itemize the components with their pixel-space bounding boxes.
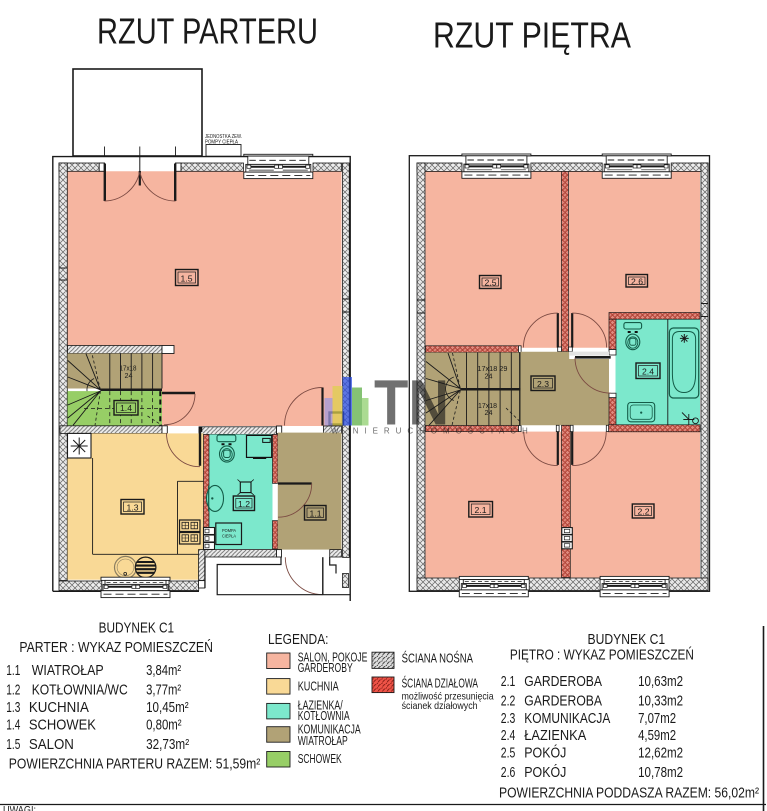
svg-text:1.1: 1.1 [310, 509, 322, 519]
svg-text:1.5: 1.5 [6, 737, 20, 753]
svg-text:3,84m²: 3,84m² [146, 663, 181, 679]
svg-text:SCHOWEK: SCHOWEK [298, 751, 342, 766]
svg-text:2.6: 2.6 [631, 276, 643, 286]
svg-text:24: 24 [485, 410, 493, 417]
svg-text:17x18 29: 17x18 29 [477, 366, 507, 373]
svg-text:GARDEROBA: GARDEROBA [524, 694, 602, 710]
svg-text:KUCHNIA: KUCHNIA [29, 700, 89, 716]
svg-text:1.4: 1.4 [6, 718, 20, 734]
svg-text:RZUT PIĘTRA: RZUT PIĘTRA [433, 15, 631, 56]
svg-text:KUCHNIA: KUCHNIA [298, 679, 339, 694]
svg-text:4,59m2: 4,59m2 [638, 728, 676, 744]
svg-text:0,80m²: 0,80m² [146, 718, 182, 734]
svg-text:2.1: 2.1 [501, 674, 516, 690]
svg-text:2.4: 2.4 [501, 728, 516, 744]
svg-text:ŚCIANA NOŚNA: ŚCIANA NOŚNA [402, 651, 474, 666]
svg-text:SCHOWEK: SCHOWEK [29, 718, 96, 734]
svg-text:1.3: 1.3 [6, 700, 20, 716]
svg-text:10,78m2: 10,78m2 [638, 765, 683, 781]
svg-text:WIATROŁAP: WIATROŁAP [298, 733, 348, 748]
svg-text:12,62m2: 12,62m2 [638, 745, 683, 761]
svg-text:24: 24 [125, 373, 133, 380]
svg-text:GARDEROBA: GARDEROBA [524, 674, 602, 690]
svg-text:7,07m2: 7,07m2 [638, 711, 676, 727]
svg-text:POKÓJ: POKÓJ [524, 764, 566, 781]
svg-text:LEGENDA:: LEGENDA: [268, 631, 329, 648]
svg-text:32,73m²: 32,73m² [146, 737, 189, 753]
svg-text:10,63m2: 10,63m2 [638, 674, 683, 690]
svg-text:KOTŁOWNIA/WC: KOTŁOWNIA/WC [32, 683, 128, 699]
svg-text:1.4: 1.4 [120, 403, 132, 413]
svg-text:POMPA: POMPA [222, 528, 237, 533]
svg-text:ŚCIANA DZIAŁOWA: ŚCIANA DZIAŁOWA [402, 676, 479, 691]
svg-text:KOMUNIKACJA: KOMUNIKACJA [524, 711, 610, 727]
svg-text:CIEPŁA: CIEPŁA [222, 534, 237, 539]
svg-text:24: 24 [485, 373, 493, 380]
svg-text:BUDYNEK C1: BUDYNEK C1 [588, 632, 666, 648]
svg-text:RZUT PARTERU: RZUT PARTERU [97, 11, 318, 52]
svg-text:POKÓJ: POKÓJ [524, 744, 566, 761]
svg-text:10,33m2: 10,33m2 [638, 694, 683, 710]
svg-text:POMPY CIEPŁA: POMPY CIEPŁA [205, 140, 239, 146]
svg-text:POWIERZCHNIA PARTERU RAZEM: 51: POWIERZCHNIA PARTERU RAZEM: 51,59m² [9, 757, 261, 773]
svg-text:POWIERZCHNIA PODDASZA RAZEM: 5: POWIERZCHNIA PODDASZA RAZEM: 56,02m² [499, 786, 759, 802]
svg-text:2.6: 2.6 [501, 765, 516, 781]
svg-text:ŁAZIENKA: ŁAZIENKA [524, 728, 586, 744]
svg-text:2.3: 2.3 [501, 711, 516, 727]
svg-text:17x18: 17x18 [478, 403, 497, 410]
svg-text:2.3: 2.3 [537, 379, 549, 389]
svg-text:1.2: 1.2 [6, 683, 20, 699]
svg-text:SALON: SALON [29, 737, 74, 753]
svg-text:W NIERUCHOMOŚCIACH: W NIERUCHOMOŚCIACH [331, 427, 531, 436]
svg-text:2.2: 2.2 [501, 694, 516, 710]
svg-text:BUDYNEK C1: BUDYNEK C1 [99, 621, 175, 637]
svg-text:2.4: 2.4 [642, 367, 654, 377]
svg-text:2.1: 2.1 [475, 505, 487, 515]
svg-text:3,77m²: 3,77m² [146, 683, 181, 699]
svg-text:2.5: 2.5 [501, 745, 516, 761]
svg-text:1.2: 1.2 [238, 499, 250, 509]
svg-text:17x18: 17x18 [120, 366, 137, 373]
svg-text:2.5: 2.5 [485, 277, 497, 287]
svg-text:1.1: 1.1 [6, 663, 20, 679]
svg-text:UWAGI:: UWAGI: [3, 805, 36, 811]
svg-text:1.5: 1.5 [181, 274, 193, 284]
svg-text:1.3: 1.3 [127, 503, 139, 513]
svg-text:PIĘTRO : WYKAZ POMIESZCZEŃ: PIĘTRO : WYKAZ POMIESZCZEŃ [510, 647, 694, 664]
svg-text:WIATROŁAP: WIATROŁAP [32, 663, 104, 679]
svg-text:GARDEROBY: GARDEROBY [298, 660, 353, 675]
svg-text:ścianek działowych: ścianek działowych [402, 700, 478, 712]
svg-text:2.2: 2.2 [638, 507, 650, 517]
svg-text:PARTER : WYKAZ POMIESZCZEŃ: PARTER : WYKAZ POMIESZCZEŃ [19, 639, 213, 656]
svg-text:10,45m²: 10,45m² [146, 700, 189, 716]
